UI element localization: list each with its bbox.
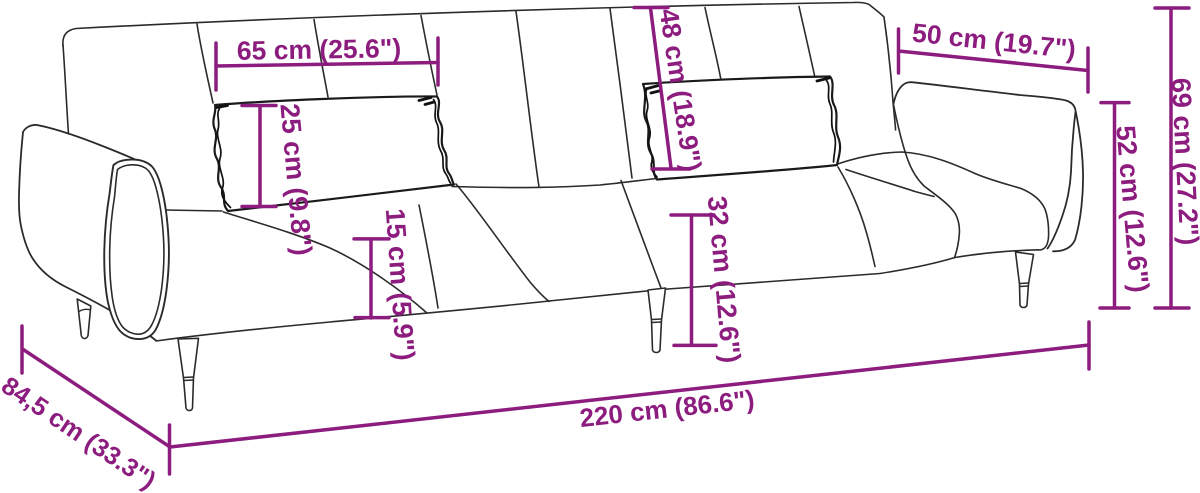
- svg-text:52 cm (12.6"): 52 cm (12.6"): [1110, 124, 1154, 293]
- svg-text:15 cm (5.9"): 15 cm (5.9"): [380, 207, 421, 361]
- svg-text:32 cm (12.6"): 32 cm (12.6"): [702, 195, 746, 364]
- svg-text:65 cm (25.6"): 65 cm (25.6"): [237, 33, 402, 66]
- svg-text:84,5 cm (33.3"): 84,5 cm (33.3"): [0, 372, 161, 493]
- svg-text:50 cm (19.7"): 50 cm (19.7"): [911, 17, 1078, 64]
